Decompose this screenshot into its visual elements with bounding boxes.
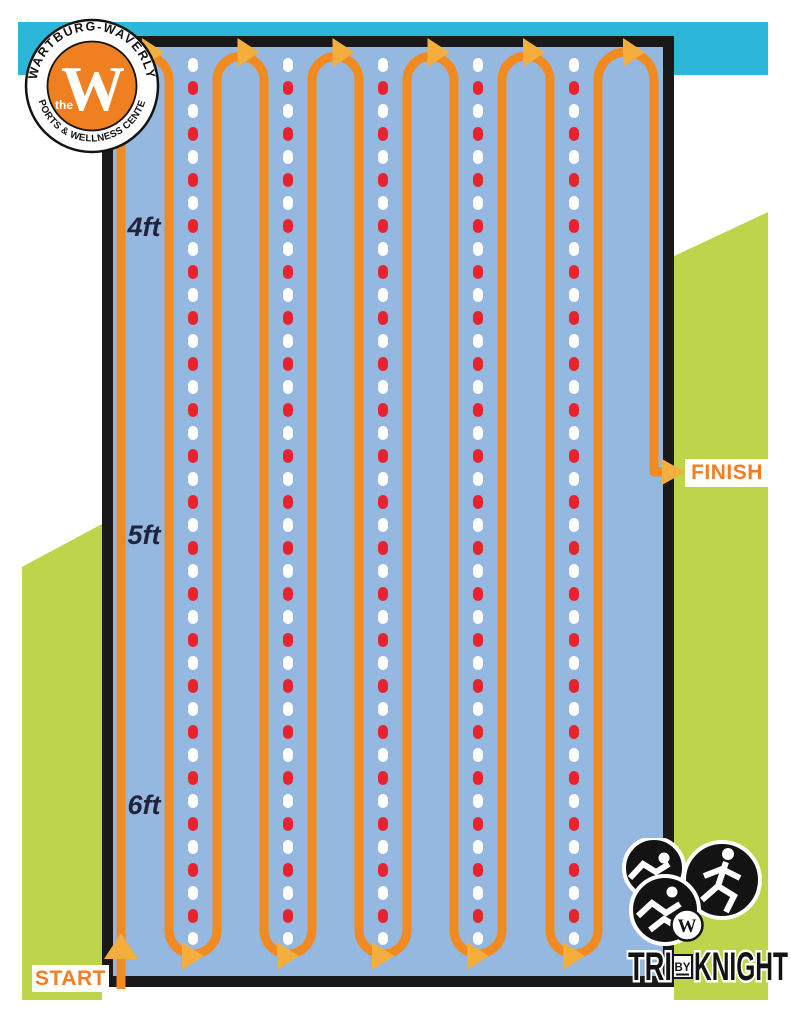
wordmark-by-text: BY	[675, 962, 691, 974]
start-label-box: START	[32, 965, 109, 992]
direction-arrow-bottom	[372, 942, 394, 970]
depth-marker-label: 5ft	[118, 520, 170, 551]
direction-arrow-bottom	[182, 942, 204, 970]
medallion-w-letter: W	[678, 916, 697, 937]
tri-by-knight-logo: W TRI BY KNIGHT	[616, 838, 791, 1002]
wartburg-waverly-logo: WARTBURG-WAVERLY SPORTS & WELLNESS CENTE…	[14, 10, 170, 166]
wordmark-by: BY	[673, 955, 692, 978]
logo-w-letter: W	[61, 53, 125, 124]
wordmark-knight: KNIGHT	[694, 945, 788, 989]
finish-label: FINISH	[691, 461, 763, 485]
finish-arrow	[662, 459, 685, 485]
direction-arrow-bottom	[467, 942, 489, 970]
direction-arrow-bottom	[563, 942, 585, 970]
swim-path	[121, 52, 667, 989]
depth-marker-label: 4ft	[118, 212, 170, 243]
start-arrow	[104, 933, 138, 959]
direction-arrow-top	[623, 38, 645, 67]
swim-course-map: 4ft5ft6ft START FINISH WARTBURG-WAVERLY …	[0, 0, 791, 1024]
start-label: START	[35, 967, 106, 991]
wordmark-tri: TRI	[628, 945, 672, 989]
logo-the-word: the	[55, 98, 73, 112]
depth-marker-label: 6ft	[118, 790, 170, 821]
direction-arrow-bottom	[277, 942, 299, 970]
finish-label-box: FINISH	[685, 459, 769, 487]
w-medallion: W	[672, 910, 703, 941]
